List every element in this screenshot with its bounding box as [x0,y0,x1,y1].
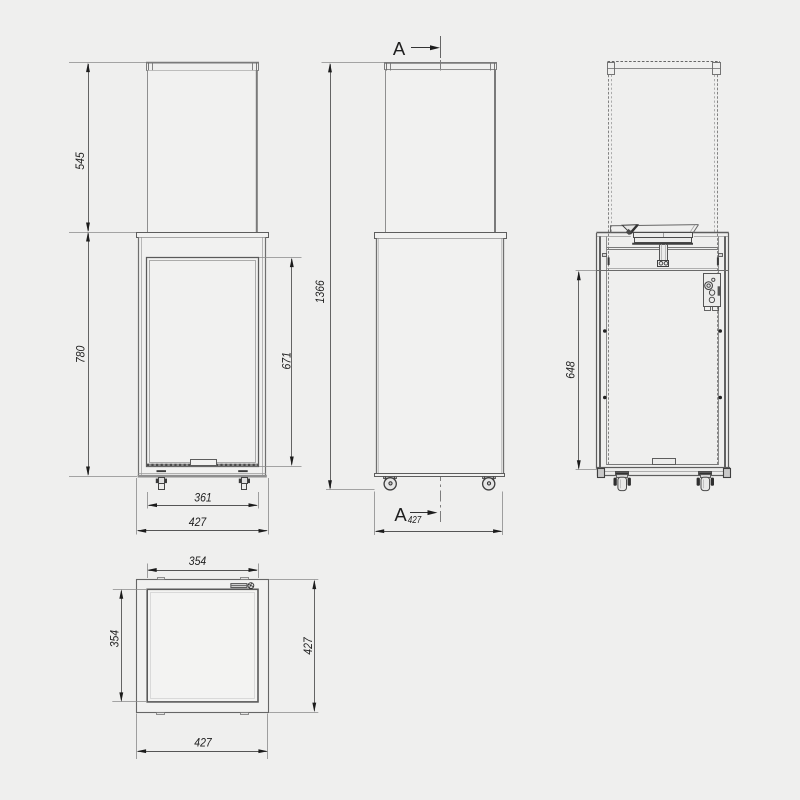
svg-text:545: 545 [73,152,87,170]
svg-text:361: 361 [194,491,212,505]
svg-text:427: 427 [189,515,208,529]
svg-text:671: 671 [280,352,294,370]
svg-text:427: 427 [408,515,422,526]
svg-text:354: 354 [189,554,207,568]
svg-text:780: 780 [73,345,87,363]
svg-text:427: 427 [301,636,315,655]
svg-text:648: 648 [564,361,578,379]
svg-text:427: 427 [194,735,213,749]
svg-text:A: A [393,38,406,59]
svg-text:A: A [394,504,407,525]
svg-text:354: 354 [107,630,121,648]
svg-text:1366: 1366 [313,280,327,303]
